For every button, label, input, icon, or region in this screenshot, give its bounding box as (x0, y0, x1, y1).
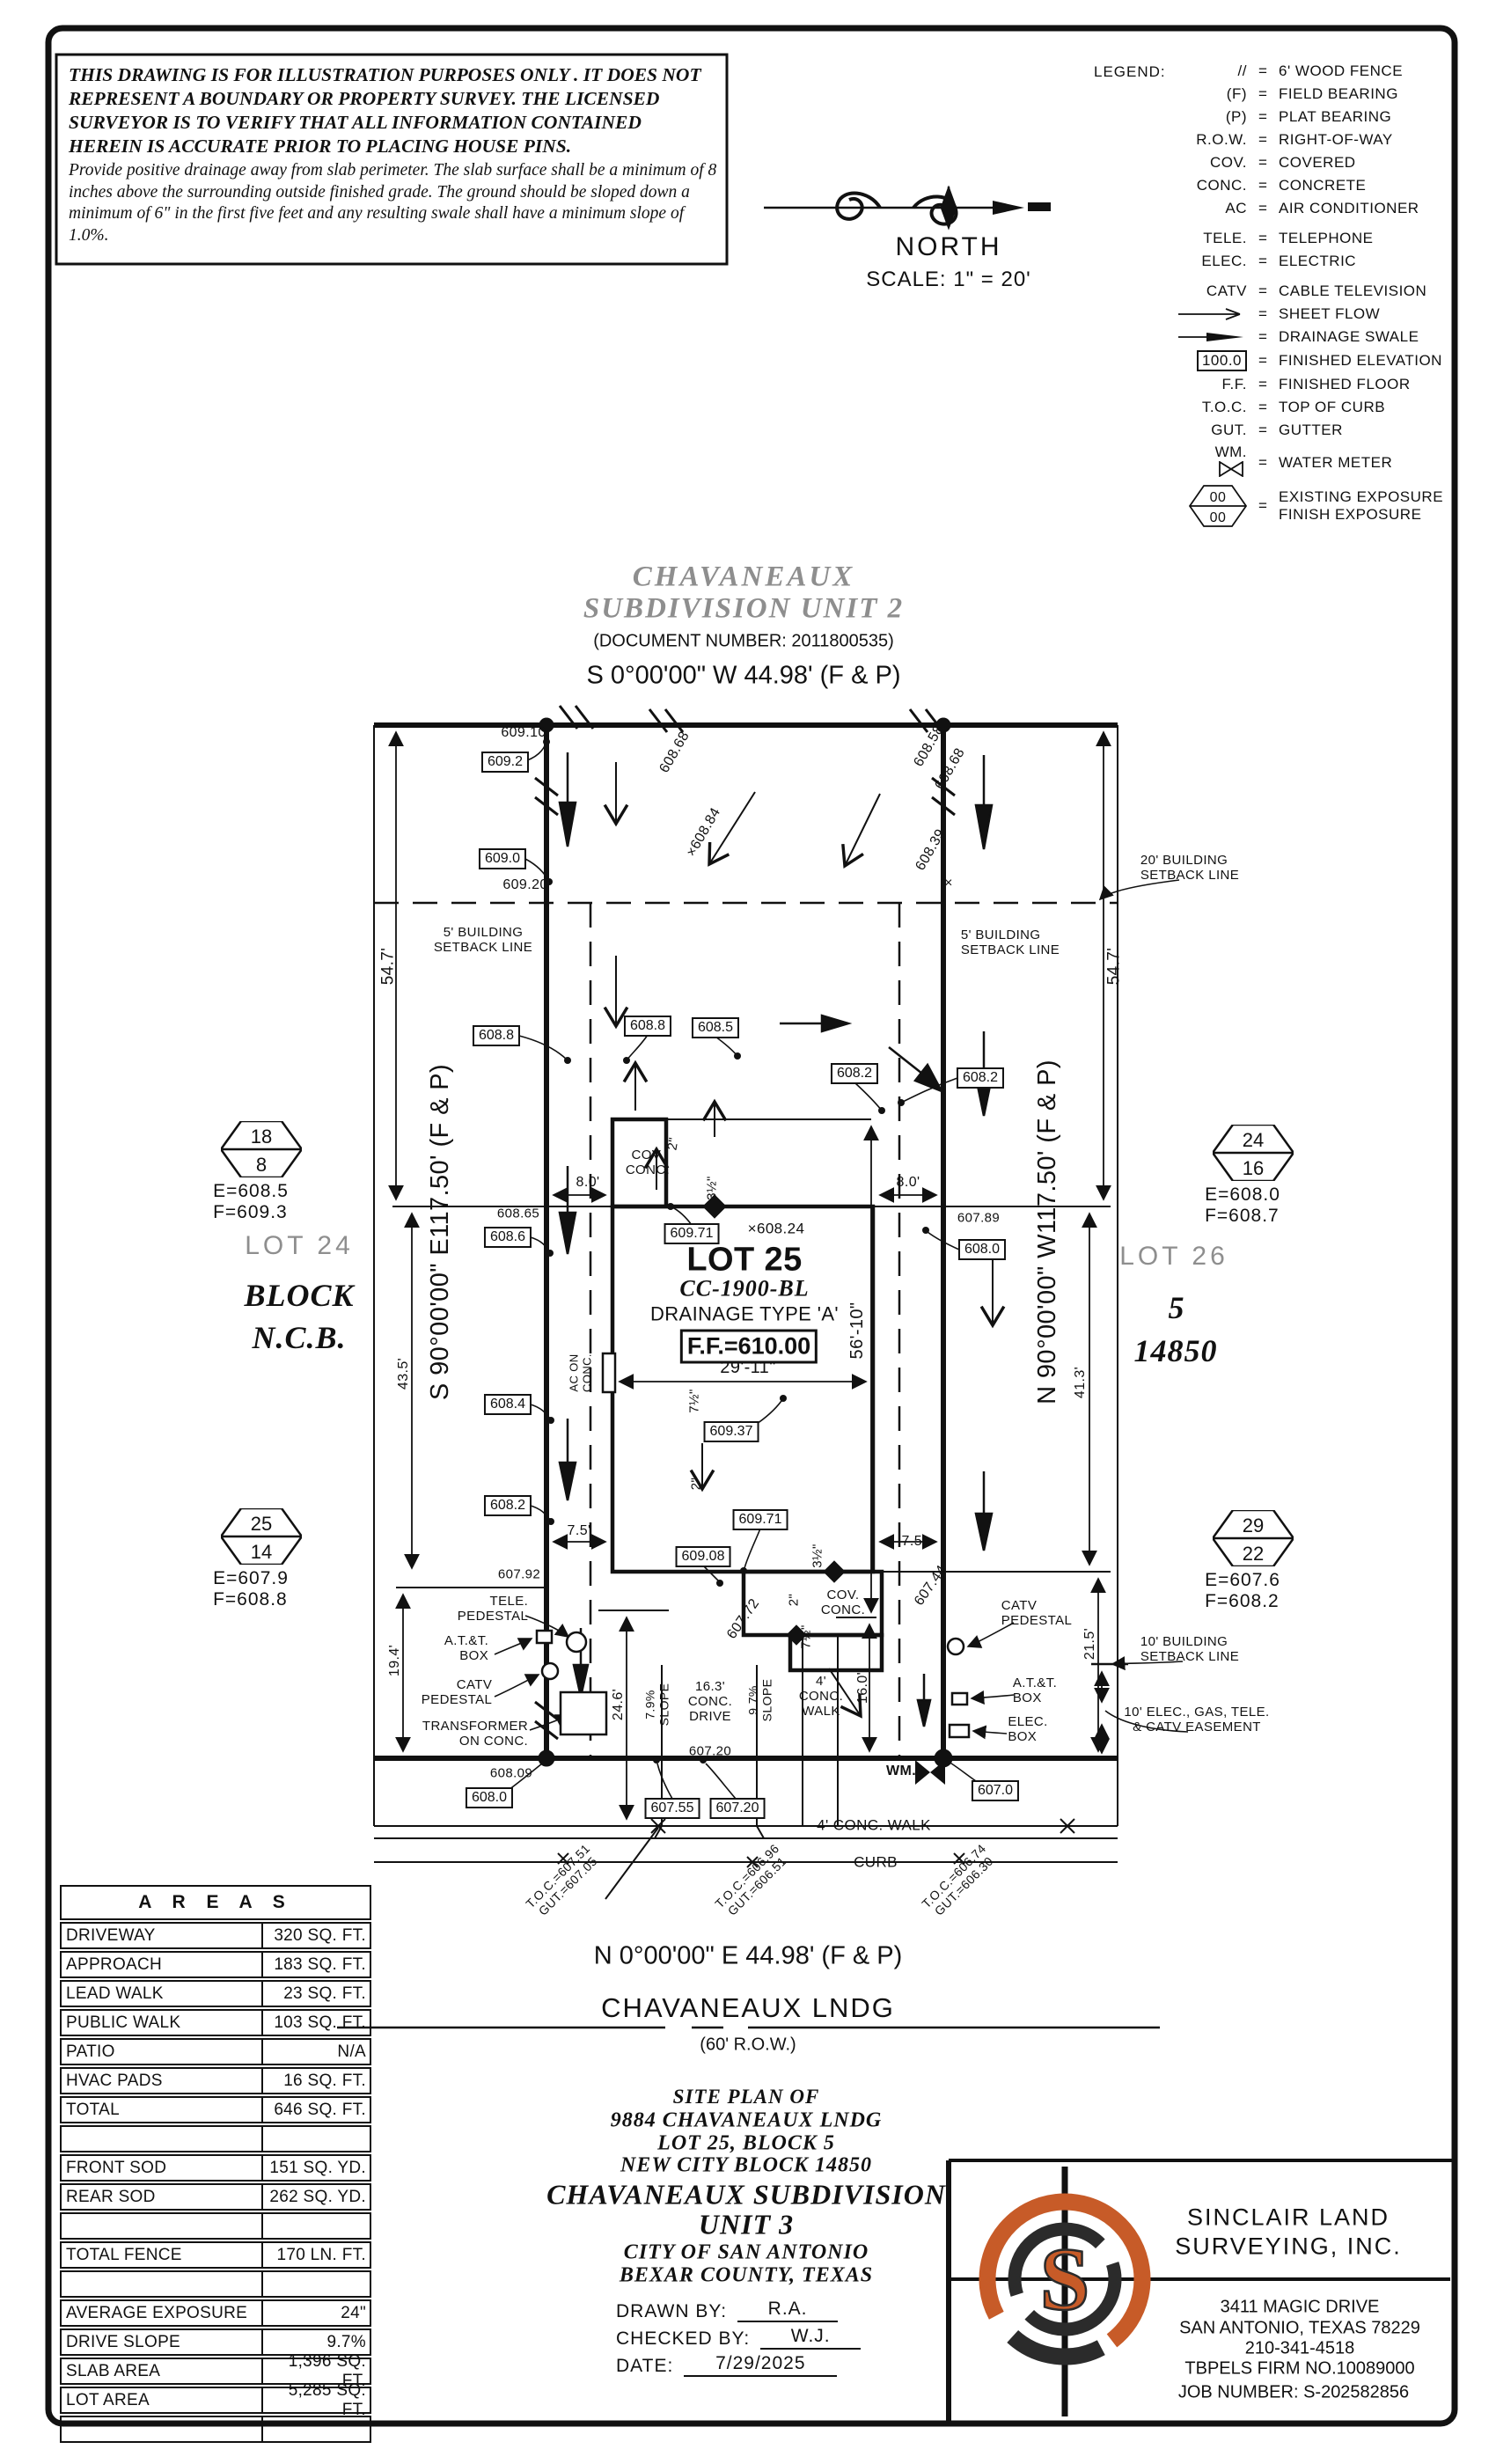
subdivision-title-line2: SUBDIVISION UNIT 2 (583, 593, 904, 626)
boxed-elevation-17: 607.55 (645, 1798, 700, 1819)
boxed-elevation-12: 609.37 (704, 1421, 759, 1442)
firm-logo-letter: S (1040, 2230, 1090, 2329)
legend-row-4: COV.=COVERED (1175, 153, 1455, 172)
areas-row-label-6: TOTAL (62, 2098, 263, 2122)
areas-row-5: HVAC PADS16 SQ. FT. (60, 2067, 371, 2094)
plot-annotation-54: 24.6' (611, 1689, 627, 1720)
areas-row-17 (60, 2416, 371, 2443)
plot-annotation-24: 607.89 (957, 1212, 1000, 1227)
plot-annotation-44: AC ON CONC. (568, 1353, 593, 1392)
legend-row-1: (F)=FIELD BEARING (1175, 84, 1455, 104)
legend-equals-13: = (1247, 376, 1279, 393)
areas-row-value-6: 646 SQ. FT. (263, 2101, 370, 2120)
titleblock-lot-block: LOT 25, BLOCK 5 (657, 2132, 835, 2156)
legend-equals-17: = (1247, 497, 1279, 515)
plot-annotation-14: N 90°00'00" W117.50' (F & P) (1033, 1060, 1061, 1404)
legend-equals-2: = (1247, 108, 1279, 126)
titleblock-address: 9884 CHAVANEAUX LNDG (611, 2109, 882, 2133)
legend-label-12: FINISHED ELEVATION (1279, 352, 1442, 370)
plot-annotation-15: 43.5' (396, 1358, 412, 1390)
legend-title: LEGEND: (1094, 63, 1166, 81)
plot-annotation-12: 54.7' (1104, 948, 1123, 986)
plot-annotation-52: TRANSFORMER ON CONC. (422, 1720, 528, 1749)
legend-equals-9: = (1247, 282, 1279, 300)
svg-text:29: 29 (1243, 1514, 1264, 1536)
areas-row-11: TOTAL FENCE170 LN. FT. (60, 2241, 371, 2269)
boxed-elevation-16: 608.0 (466, 1787, 513, 1808)
boxed-elevation-4: 608.5 (692, 1017, 739, 1038)
plot-annotation-60: CATV PEDESTAL (1001, 1599, 1072, 1629)
legend-symbol-1: (F) (1175, 85, 1247, 103)
areas-row-label-5: HVAC PADS (62, 2069, 263, 2093)
plot-annotation-64: 10' ELEC., GAS, TELE. & CATV EASEMENT (1124, 1705, 1269, 1735)
svg-text:00: 00 (1210, 510, 1227, 525)
plot-annotation-65: 21.5' (1082, 1628, 1098, 1660)
titleblock-county: BEXAR COUNTY, TEXAS (620, 2264, 873, 2288)
areas-row-12 (60, 2270, 371, 2298)
legend-row-16: WM.=WATER METER (1175, 444, 1455, 481)
areas-row-label-10 (62, 2214, 263, 2238)
plot-annotation-27: ×608.24 (748, 1220, 805, 1236)
legend-label-5: CONCRETE (1279, 177, 1366, 194)
legend-label-11: DRAINAGE SWALE (1279, 328, 1419, 346)
areas-row-label-4: PATIO (62, 2040, 263, 2064)
plot-annotation-32: 56'-10" (847, 1302, 867, 1360)
legend-row-11: =DRAINAGE SWALE (1175, 327, 1455, 347)
firm-job-number: JOB NUMBER: S-202582856 (1178, 2383, 1409, 2403)
plot-annotation-59: 16.0' (855, 1672, 871, 1704)
exposure-values-0: E=608.5 F=609.3 (213, 1181, 289, 1223)
legend-row-2: (P)=PLAT BEARING (1175, 107, 1455, 127)
boxed-elevation-19: 607.0 (972, 1780, 1019, 1801)
areas-row-6: TOTAL646 SQ. FT. (60, 2096, 371, 2123)
areas-row-7 (60, 2125, 371, 2152)
legend-equals-0: = (1247, 62, 1279, 80)
plot-annotation-57: 9.7% SLOPE (746, 1679, 774, 1722)
legend-equals-14: = (1247, 399, 1279, 416)
areas-row-value-5: 16 SQ. FT. (263, 2072, 370, 2091)
checked-by-label: CHECKED BY: (616, 2328, 750, 2350)
legend-row-12: 100.0=FINISHED ELEVATION (1175, 350, 1455, 371)
legend-row-6: AC=AIR CONDITIONER (1175, 199, 1455, 218)
titleblock-subdivision: CHAVANEAUX SUBDIVISION (546, 2179, 946, 2211)
plot-annotation-26: 608.09 (490, 1767, 532, 1782)
date-label: DATE: (616, 2356, 673, 2377)
areas-row-label-3: PUBLIC WALK (62, 2011, 263, 2035)
legend-symbol-10 (1175, 306, 1247, 322)
areas-row-0: DRIVEWAY320 SQ. FT. (60, 1922, 371, 1949)
firm-phone: 210-341-4518 (1245, 2339, 1355, 2359)
street-name: CHAVANEAUX LNDG (601, 1992, 895, 2024)
plot-annotation-37: 2" (690, 1478, 705, 1490)
plot-annotation-0: 609.10 (501, 725, 546, 741)
legend-equals-10: = (1247, 305, 1279, 323)
checked-by-row: CHECKED BY: W.J. (616, 2326, 861, 2350)
boxed-elevation-9: 608.0 (958, 1239, 1006, 1260)
areas-row-10 (60, 2212, 371, 2240)
legend-symbol-6: AC (1175, 200, 1247, 217)
legend-symbol-4: COV. (1175, 154, 1247, 172)
plot-annotation-16: 41.3' (1073, 1367, 1089, 1398)
areas-row-label-2: LEAD WALK (62, 1982, 263, 2006)
titleblock-site-plan-of: SITE PLAN OF (673, 2086, 820, 2108)
boxed-elevation-6: 608.2 (957, 1067, 1004, 1089)
legend-label-0: 6' WOOD FENCE (1279, 62, 1403, 80)
legend-row-0: //=6' WOOD FENCE (1175, 62, 1455, 81)
plot-annotation-19: N.C.B. (252, 1320, 346, 1355)
svg-text:8: 8 (256, 1154, 267, 1176)
legend-label-3: RIGHT-OF-WAY (1279, 131, 1393, 149)
legend-row-7: TELE.=TELEPHONE (1175, 229, 1455, 248)
legend-symbol-3: R.O.W. (1175, 131, 1247, 149)
firm-tbpels-number: TBPELS FIRM NO.10089000 (1184, 2359, 1414, 2380)
plot-annotation-58: 4' CONC. WALK (799, 1675, 843, 1719)
plot-annotation-53: 19.4' (387, 1645, 403, 1676)
areas-row-value-14: 9.7% (263, 2333, 370, 2352)
date-row: DATE: 7/29/2025 (616, 2353, 837, 2377)
areas-row-9: REAR SOD262 SQ. YD. (60, 2183, 371, 2211)
plot-annotation-56: 16.3' CONC. DRIVE (688, 1680, 732, 1724)
titleblock-new-city-block: NEW CITY BLOCK 14850 (620, 2154, 872, 2178)
boxed-elevation-8: 609.71 (664, 1223, 720, 1244)
plot-annotation-8: 20' BUILDING SETBACK LINE (1140, 854, 1239, 884)
plot-annotation-21: 5 (1169, 1290, 1185, 1325)
drawn-by-label: DRAWN BY: (616, 2301, 727, 2322)
plot-annotation-36: 7½" (688, 1389, 703, 1412)
drawn-by-value: R.A. (737, 2299, 838, 2322)
areas-row-value-11: 170 LN. FT. (263, 2246, 370, 2265)
plot-annotation-55: 7.9% SLOPE (643, 1683, 671, 1727)
plot-annotation-18: BLOCK (244, 1278, 354, 1313)
areas-row-label-14: DRIVE SLOPE (62, 2330, 263, 2354)
areas-row-label-7 (62, 2127, 263, 2151)
legend-label-17: EXISTING EXPOSURE FINISH EXPOSURE (1279, 488, 1443, 523)
legend-row-17: 0000=EXISTING EXPOSURE FINISH EXPOSURE (1175, 485, 1455, 527)
plot-annotation-10: 5' BUILDING SETBACK LINE (961, 928, 1060, 958)
areas-row-label-9: REAR SOD (62, 2185, 263, 2209)
areas-row-label-17 (62, 2417, 263, 2441)
plot-annotation-23: 608.65 (497, 1207, 539, 1222)
legend-symbol-0: // (1175, 62, 1247, 80)
legend-symbol-9: CATV (1175, 282, 1247, 300)
firm-name-line1: SINCLAIR LAND (1187, 2204, 1390, 2232)
areas-row-label-16: LOT AREA (62, 2388, 263, 2412)
legend-symbol-5: CONC. (1175, 177, 1247, 194)
areas-row-value-0: 320 SQ. FT. (263, 1926, 370, 1946)
boxed-elevation-14: 609.08 (676, 1546, 731, 1567)
boxed-elevation-15: F.F.=610.00 (680, 1330, 818, 1364)
legend-row-13: F.F.=FINISHED FLOOR (1175, 375, 1455, 394)
exposure-hexagon-3: 2922 (1213, 1510, 1294, 1571)
plot-annotation-30: DRAINAGE TYPE 'A' (650, 1304, 839, 1326)
legend-label-1: FIELD BEARING (1279, 85, 1398, 103)
legend-equals-16: = (1247, 454, 1279, 472)
plot-annotation-67: WM. (886, 1764, 916, 1779)
plot-annotation-69: CURB (854, 1853, 898, 1870)
plot-annotation-1: 609.20 (502, 877, 547, 893)
scale-label: SCALE: 1" = 20' (866, 268, 1031, 292)
boxed-elevation-0: 609.2 (481, 752, 529, 773)
svg-text:22: 22 (1243, 1543, 1264, 1565)
legend-row-14: T.O.C.=TOP OF CURB (1175, 398, 1455, 417)
legend-symbol-12: 100.0 (1175, 350, 1247, 371)
legend-symbol-11 (1175, 329, 1247, 345)
svg-text:24: 24 (1243, 1129, 1264, 1151)
legend-symbol-13: F.F. (1175, 376, 1247, 393)
plot-annotation-17: LOT 24 (245, 1231, 354, 1261)
areas-row-16: LOT AREA5,285 SQ. FT. (60, 2387, 371, 2414)
plot-annotation-20: LOT 26 (1119, 1242, 1228, 1272)
street-row-width: (60' R.O.W.) (700, 2035, 796, 2056)
areas-row-3: PUBLIC WALK103 SQ. FT. (60, 2009, 371, 2036)
areas-row-label-1: APPROACH (62, 1953, 263, 1976)
legend-equals-7: = (1247, 230, 1279, 247)
svg-text:00: 00 (1210, 490, 1227, 505)
disclaimer-paragraph-2: Provide positive drainage away from slab… (69, 160, 718, 246)
boxed-elevation-18: 607.20 (710, 1798, 766, 1819)
exposure-values-3: E=607.6 F=608.2 (1205, 1570, 1280, 1612)
plot-annotation-40: 7½" (800, 1624, 815, 1648)
disclaimer-note: THIS DRAWING IS FOR ILLUSTRATION PURPOSE… (69, 63, 718, 247)
boxed-elevation-5: 608.2 (831, 1063, 878, 1084)
plot-annotation-28: LOT 25 (686, 1242, 802, 1280)
survey-site-plan-sheet: S THIS DRAWING IS FOR ILLUSTRATION PURPO… (0, 0, 1496, 2464)
north-boundary-bearing: S 0°00'00" W 44.98' (F & P) (587, 662, 901, 691)
legend-label-9: CABLE TELEVISION (1279, 282, 1426, 300)
plot-annotation-9: 5' BUILDING SETBACK LINE (434, 926, 532, 956)
plot-annotation-46: 8.0' (897, 1175, 920, 1191)
legend-label-2: PLAT BEARING (1279, 108, 1391, 126)
legend-symbol-7: TELE. (1175, 230, 1247, 247)
plot-annotation-50: A.T.&T. BOX (444, 1634, 488, 1664)
exposure-hexagon-0: 188 (221, 1121, 302, 1182)
plot-annotation-47: 7.5' (568, 1523, 591, 1539)
legend-symbol-14: T.O.C. (1175, 399, 1247, 416)
areas-row-value-4: N/A (263, 2042, 370, 2062)
areas-row-value-9: 262 SQ. YD. (263, 2188, 370, 2207)
plot-annotation-7: × (944, 876, 953, 891)
boxed-elevation-1: 609.0 (479, 848, 526, 869)
legend-symbol-2: (P) (1175, 108, 1247, 126)
legend-label-6: AIR CONDITIONER (1279, 200, 1419, 217)
legend-rows: //=6' WOOD FENCE(F)=FIELD BEARING(P)=PLA… (1175, 58, 1455, 531)
exposure-hexagon-1: 2514 (221, 1508, 302, 1569)
plot-annotation-66: 607.20 (689, 1745, 731, 1760)
areas-row-label-8: FRONT SOD (62, 2156, 263, 2180)
svg-text:18: 18 (251, 1126, 272, 1148)
plot-annotation-35: COV. CONC. (626, 1148, 670, 1178)
areas-row-13: AVERAGE EXPOSURE24" (60, 2299, 371, 2327)
legend-label-13: FINISHED FLOOR (1279, 376, 1411, 393)
legend-row-15: GUT.=GUTTER (1175, 421, 1455, 440)
boxed-elevation-2: 608.8 (473, 1025, 520, 1046)
plot-annotation-13: S 90°00'00" E117.50' (F & P) (426, 1064, 454, 1400)
areas-row-value-2: 23 SQ. FT. (263, 1984, 370, 2004)
areas-row-1: APPROACH183 SQ. FT. (60, 1951, 371, 1978)
areas-row-value-16: 5,285 SQ. FT. (263, 2381, 370, 2420)
checked-by-value: W.J. (760, 2326, 861, 2350)
areas-row-label-12 (62, 2272, 263, 2296)
legend-equals-4: = (1247, 154, 1279, 172)
areas-row-label-13: AVERAGE EXPOSURE (62, 2301, 263, 2325)
firm-address-line2: SAN ANTONIO, TEXAS 78229 (1179, 2319, 1420, 2339)
plot-annotation-41: COV. CONC. (821, 1588, 865, 1618)
subdivision-title-line1: CHAVANEAUX (633, 561, 855, 594)
areas-row-label-11: TOTAL FENCE (62, 2243, 263, 2267)
firm-name-line2: SURVEYING, INC. (1175, 2233, 1402, 2261)
boxed-elevation-10: 608.4 (484, 1394, 532, 1415)
legend-equals-5: = (1247, 177, 1279, 194)
plot-annotation-11: 54.7' (378, 948, 397, 986)
legend-label-8: ELECTRIC (1279, 253, 1356, 270)
legend-label-15: GUTTER (1279, 422, 1343, 439)
plot-annotation-61: A.T.&T. BOX (1013, 1676, 1057, 1706)
drawn-by-row: DRAWN BY: R.A. (616, 2299, 838, 2322)
north-label: NORTH (895, 232, 1001, 262)
areas-table-body: DRIVEWAY320 SQ. FT.APPROACH183 SQ. FT.LE… (60, 1922, 371, 2443)
areas-row-value-1: 183 SQ. FT. (263, 1955, 370, 1975)
areas-row-label-0: DRIVEWAY (62, 1924, 263, 1947)
legend-symbol-16: WM. (1175, 444, 1247, 481)
legend-equals-15: = (1247, 422, 1279, 439)
legend-equals-8: = (1247, 253, 1279, 270)
date-value: 7/29/2025 (684, 2353, 837, 2377)
plot-annotation-51: CATV PEDESTAL (422, 1678, 492, 1708)
boxed-elevation-11: 608.2 (484, 1495, 532, 1516)
legend-equals-12: = (1247, 352, 1279, 370)
south-boundary-bearing: N 0°00'00" E 44.98' (F & P) (594, 1942, 903, 1971)
plot-annotation-38: 3½" (811, 1544, 826, 1567)
areas-row-value-13: 24" (263, 2304, 370, 2323)
plot-annotation-49: TELE. PEDESTAL (458, 1595, 528, 1624)
legend-equals-6: = (1247, 200, 1279, 217)
legend-equals-11: = (1247, 328, 1279, 346)
plot-annotation-62: ELEC. BOX (1008, 1715, 1047, 1745)
svg-text:14: 14 (251, 1541, 272, 1563)
areas-row-4: PATION/A (60, 2038, 371, 2065)
exposure-values-1: E=607.9 F=608.8 (213, 1568, 289, 1610)
plot-annotation-48: 7.5' (902, 1534, 926, 1550)
exposure-hexagon-2: 2416 (1213, 1125, 1294, 1185)
legend-row-9: CATV=CABLE TELEVISION (1175, 282, 1455, 301)
areas-row-label-15: SLAB AREA (62, 2359, 263, 2383)
legend-label-7: TELEPHONE (1279, 230, 1373, 247)
legend-symbol-17: 0000 (1175, 485, 1247, 527)
legend-row-8: ELEC.=ELECTRIC (1175, 252, 1455, 271)
disclaimer-paragraph-1: THIS DRAWING IS FOR ILLUSTRATION PURPOSE… (69, 63, 718, 158)
plot-annotation-29: CC-1900-BL (679, 1275, 809, 1301)
document-number: (DOCUMENT NUMBER: 2011800535) (593, 632, 894, 652)
legend-row-3: R.O.W.=RIGHT-OF-WAY (1175, 130, 1455, 150)
boxed-elevation-3: 608.8 (624, 1016, 671, 1037)
firm-address-line1: 3411 MAGIC DRIVE (1221, 2298, 1380, 2318)
svg-text:16: 16 (1243, 1157, 1264, 1179)
legend-symbol-8: ELEC. (1175, 253, 1247, 270)
legend-row-5: CONC.=CONCRETE (1175, 176, 1455, 195)
titleblock-unit: UNIT 3 (699, 2209, 794, 2241)
legend-equals-3: = (1247, 131, 1279, 149)
exposure-values-2: E=608.0 F=608.7 (1205, 1184, 1280, 1227)
legend-symbol-15: GUT. (1175, 422, 1247, 439)
plot-annotation-33: 3½" (706, 1176, 721, 1199)
plot-annotation-63: 10' BUILDING SETBACK LINE (1140, 1635, 1239, 1665)
legend-row-10: =SHEET FLOW (1175, 304, 1455, 324)
areas-table-title: A R E A S (60, 1885, 371, 1920)
plot-annotation-22: 14850 (1134, 1333, 1218, 1368)
plot-annotation-68: 4' CONC. WALK (817, 1816, 931, 1833)
legend-label-4: COVERED (1279, 154, 1356, 172)
plot-annotation-39: 2" (788, 1594, 803, 1606)
areas-row-8: FRONT SOD151 SQ. YD. (60, 2154, 371, 2182)
legend-equals-1: = (1247, 85, 1279, 103)
plot-annotation-45: 8.0' (576, 1175, 600, 1191)
legend-label-14: TOP OF CURB (1279, 399, 1385, 416)
areas-row-value-3: 103 SQ. FT. (263, 2013, 370, 2033)
legend-label-10: SHEET FLOW (1279, 305, 1380, 323)
areas-table: A R E A S DRIVEWAY320 SQ. FT.APPROACH183… (60, 1885, 371, 2443)
legend-label-16: WATER METER (1279, 454, 1392, 472)
svg-text:25: 25 (251, 1513, 272, 1535)
plot-annotation-25: 607.92 (498, 1568, 540, 1583)
boxed-elevation-7: 608.6 (484, 1227, 532, 1248)
titleblock-city: CITY OF SAN ANTONIO (624, 2241, 869, 2265)
areas-row-2: LEAD WALK23 SQ. FT. (60, 1980, 371, 2007)
boxed-elevation-13: 609.71 (733, 1509, 788, 1530)
areas-row-value-8: 151 SQ. YD. (263, 2159, 370, 2178)
